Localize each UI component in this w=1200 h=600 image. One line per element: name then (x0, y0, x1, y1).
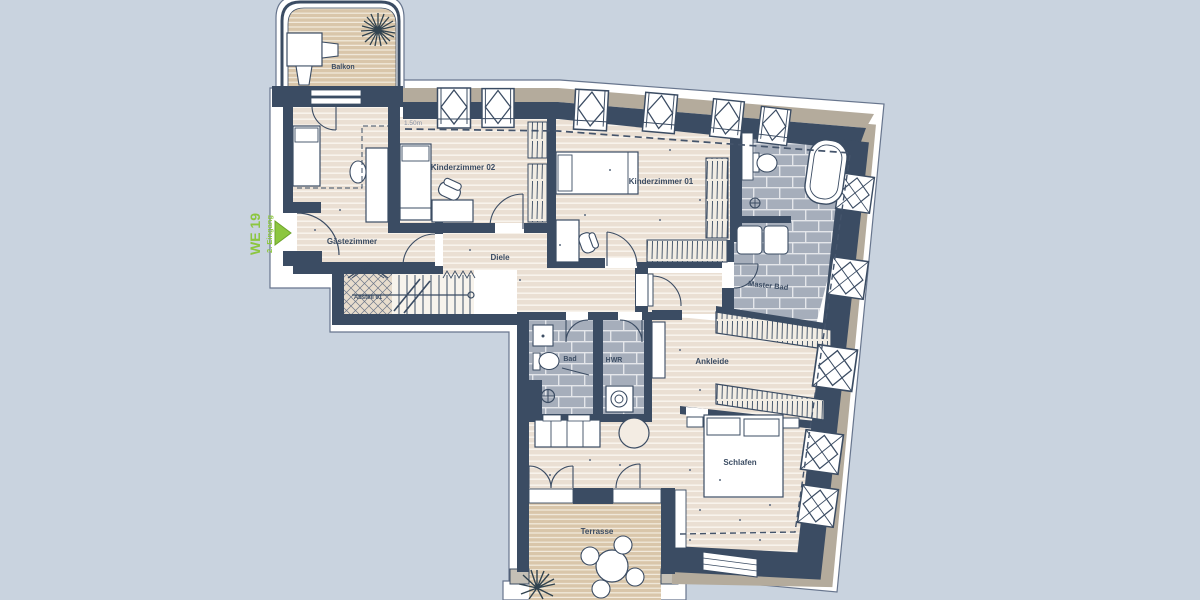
svg-text:Kinderzimmer 01: Kinderzimmer 01 (629, 177, 694, 186)
svg-text:Ankleide: Ankleide (695, 357, 729, 366)
svg-text:2. Eingang: 2. Eingang (265, 215, 274, 253)
svg-text:Gästezimmer: Gästezimmer (327, 237, 377, 246)
svg-text:Schlafen: Schlafen (723, 458, 756, 467)
svg-text:WE 19: WE 19 (247, 213, 263, 255)
svg-text:Balkon: Balkon (331, 64, 354, 71)
svg-text:Diele: Diele (490, 253, 510, 262)
svg-text:Kinderzimmer 02: Kinderzimmer 02 (431, 163, 496, 172)
svg-text:Abstell 01: Abstell 01 (354, 295, 383, 301)
svg-text:Bad: Bad (563, 356, 576, 363)
svg-text:1.50m: 1.50m (404, 120, 422, 127)
svg-text:Terrasse: Terrasse (581, 527, 614, 536)
svg-text:HWR: HWR (606, 357, 623, 364)
